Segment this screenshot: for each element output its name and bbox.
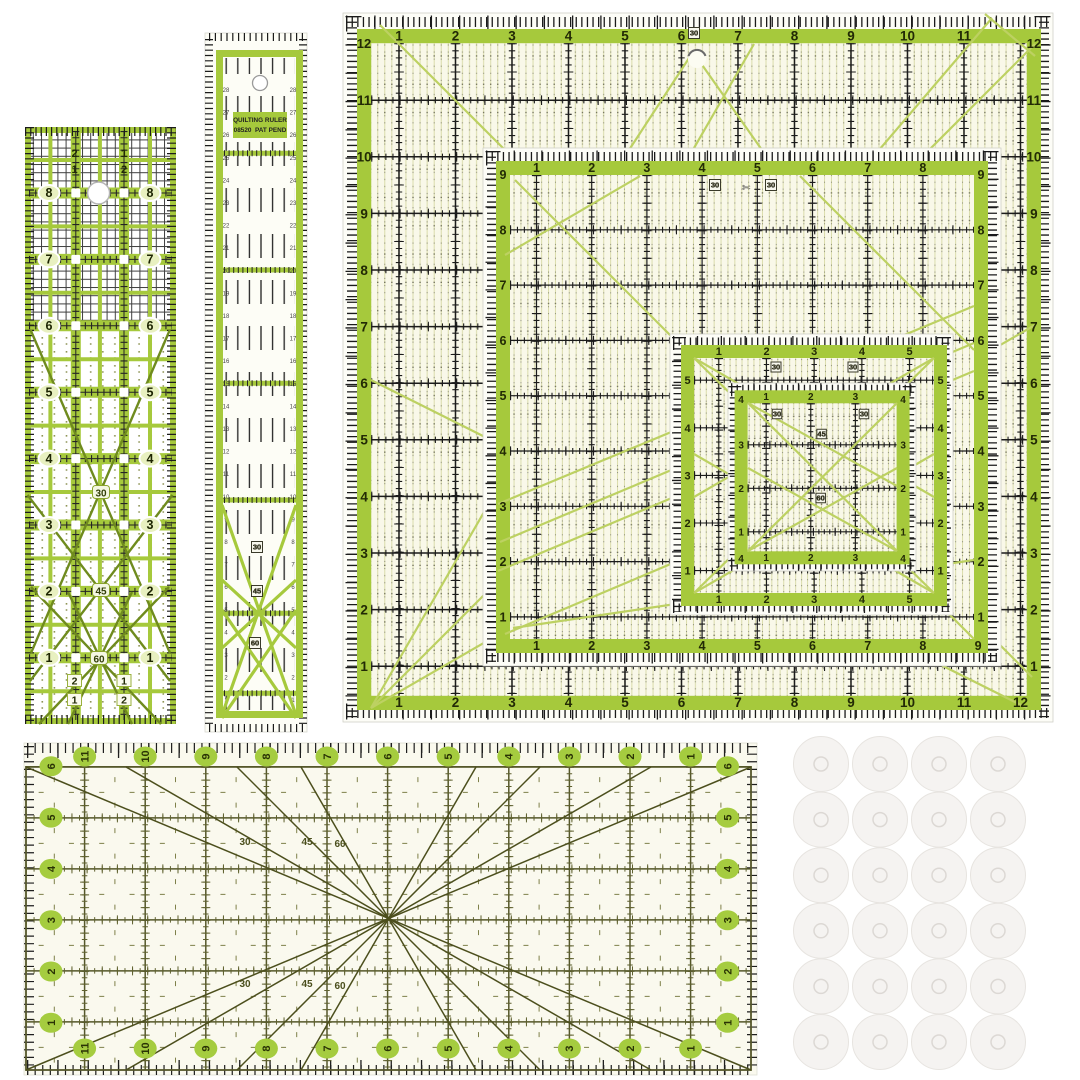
svg-text:1: 1 bbox=[685, 753, 697, 759]
svg-text:2: 2 bbox=[500, 555, 507, 569]
svg-text:7: 7 bbox=[1030, 319, 1038, 334]
svg-text:2: 2 bbox=[763, 594, 769, 606]
svg-text:18: 18 bbox=[290, 314, 297, 320]
svg-text:8: 8 bbox=[360, 263, 368, 278]
svg-text:1: 1 bbox=[147, 651, 154, 665]
svg-text:14: 14 bbox=[290, 404, 297, 410]
svg-text:5: 5 bbox=[360, 433, 368, 448]
svg-text:4: 4 bbox=[500, 445, 507, 459]
svg-text:45: 45 bbox=[95, 587, 107, 598]
svg-text:2: 2 bbox=[46, 585, 53, 599]
svg-text:5: 5 bbox=[937, 375, 943, 387]
svg-text:5: 5 bbox=[147, 385, 154, 399]
svg-text:23: 23 bbox=[223, 201, 230, 207]
svg-text:12: 12 bbox=[1013, 695, 1028, 710]
svg-text:2: 2 bbox=[937, 518, 943, 530]
svg-text:12: 12 bbox=[1027, 36, 1041, 51]
svg-text:1: 1 bbox=[533, 639, 540, 653]
svg-text:4: 4 bbox=[859, 594, 866, 606]
svg-text:11: 11 bbox=[79, 751, 91, 763]
svg-text:4: 4 bbox=[859, 346, 866, 358]
svg-text:3: 3 bbox=[508, 695, 516, 710]
svg-text:27: 27 bbox=[223, 111, 230, 117]
svg-text:28: 28 bbox=[290, 88, 297, 94]
svg-text:2: 2 bbox=[625, 753, 637, 759]
svg-text:8: 8 bbox=[791, 695, 799, 710]
svg-text:5: 5 bbox=[754, 161, 761, 175]
svg-text:1: 1 bbox=[763, 553, 769, 564]
svg-text:8: 8 bbox=[500, 223, 507, 237]
svg-text:8: 8 bbox=[919, 639, 926, 653]
svg-text:3: 3 bbox=[46, 917, 58, 923]
svg-text:25: 25 bbox=[223, 156, 230, 162]
svg-text:8: 8 bbox=[791, 28, 799, 43]
svg-text:3: 3 bbox=[978, 500, 985, 514]
svg-text:7: 7 bbox=[322, 1045, 334, 1051]
svg-text:4: 4 bbox=[1030, 489, 1038, 504]
svg-text:30: 30 bbox=[95, 489, 107, 500]
svg-text:26: 26 bbox=[290, 133, 297, 139]
svg-text:4: 4 bbox=[565, 28, 573, 43]
svg-text:5: 5 bbox=[46, 385, 53, 399]
svg-text:1: 1 bbox=[900, 527, 906, 538]
svg-text:4: 4 bbox=[699, 161, 706, 175]
svg-text:4: 4 bbox=[504, 753, 516, 760]
svg-text:60: 60 bbox=[817, 494, 825, 503]
svg-text:30: 30 bbox=[690, 29, 698, 38]
svg-text:8: 8 bbox=[46, 186, 53, 200]
svg-text:20: 20 bbox=[290, 269, 297, 275]
svg-text:60: 60 bbox=[334, 981, 346, 992]
svg-text:4: 4 bbox=[565, 695, 573, 710]
svg-text:3: 3 bbox=[853, 553, 859, 564]
svg-text:2: 2 bbox=[46, 968, 58, 974]
svg-text:2: 2 bbox=[71, 148, 77, 160]
svg-text:5: 5 bbox=[978, 389, 985, 403]
svg-text:5: 5 bbox=[500, 389, 507, 403]
svg-text:30: 30 bbox=[772, 363, 780, 372]
svg-text:8: 8 bbox=[978, 223, 985, 237]
svg-text:3: 3 bbox=[564, 1045, 576, 1051]
svg-text:3: 3 bbox=[811, 594, 817, 606]
svg-text:4: 4 bbox=[46, 865, 58, 872]
svg-text:25: 25 bbox=[290, 156, 297, 162]
svg-text:5: 5 bbox=[907, 594, 913, 606]
svg-text:17: 17 bbox=[290, 337, 297, 343]
svg-text:2: 2 bbox=[121, 164, 127, 176]
svg-text:11: 11 bbox=[1027, 93, 1042, 108]
svg-text:9: 9 bbox=[500, 168, 507, 182]
svg-text:4: 4 bbox=[738, 554, 744, 565]
svg-text:6: 6 bbox=[678, 28, 686, 43]
svg-text:9: 9 bbox=[201, 1045, 213, 1051]
svg-text:21: 21 bbox=[223, 246, 230, 252]
svg-text:30: 30 bbox=[239, 837, 251, 848]
svg-text:22: 22 bbox=[290, 224, 297, 230]
svg-text:08520 PAT PEND: 08520 PAT PEND bbox=[234, 127, 287, 134]
svg-text:10: 10 bbox=[900, 695, 915, 710]
svg-text:4: 4 bbox=[147, 452, 154, 466]
svg-text:6: 6 bbox=[809, 161, 816, 175]
svg-text:2: 2 bbox=[588, 161, 595, 175]
svg-text:5: 5 bbox=[722, 815, 734, 821]
svg-text:6: 6 bbox=[978, 334, 985, 348]
svg-text:8: 8 bbox=[147, 186, 154, 200]
svg-text:3: 3 bbox=[360, 546, 368, 561]
svg-text:28: 28 bbox=[223, 88, 230, 94]
svg-text:8: 8 bbox=[261, 1045, 273, 1051]
svg-text:2: 2 bbox=[763, 346, 769, 358]
svg-text:3: 3 bbox=[147, 518, 154, 532]
svg-text:1: 1 bbox=[395, 28, 403, 43]
svg-text:12: 12 bbox=[357, 36, 371, 51]
svg-text:11: 11 bbox=[957, 695, 972, 710]
svg-text:4: 4 bbox=[722, 865, 734, 872]
svg-text:22: 22 bbox=[223, 224, 230, 230]
svg-text:1: 1 bbox=[937, 566, 943, 578]
svg-text:11: 11 bbox=[290, 472, 297, 478]
svg-text:13: 13 bbox=[223, 427, 230, 433]
svg-text:4: 4 bbox=[978, 445, 985, 459]
svg-text:20: 20 bbox=[223, 269, 230, 275]
svg-text:4: 4 bbox=[937, 423, 944, 435]
svg-text:2: 2 bbox=[978, 555, 985, 569]
svg-text:10: 10 bbox=[140, 1042, 152, 1054]
svg-text:10: 10 bbox=[290, 495, 297, 501]
svg-text:5: 5 bbox=[1030, 433, 1038, 448]
svg-text:3: 3 bbox=[1030, 546, 1038, 561]
svg-text:10: 10 bbox=[140, 750, 152, 762]
svg-text:6: 6 bbox=[147, 319, 154, 333]
svg-text:45: 45 bbox=[301, 979, 313, 990]
svg-text:12: 12 bbox=[223, 450, 230, 456]
svg-text:6: 6 bbox=[1030, 376, 1038, 391]
svg-text:9: 9 bbox=[360, 206, 368, 221]
svg-text:60: 60 bbox=[334, 839, 346, 850]
svg-text:4: 4 bbox=[900, 395, 906, 406]
svg-text:11: 11 bbox=[79, 1043, 91, 1055]
svg-text:2: 2 bbox=[625, 1045, 637, 1051]
svg-text:6: 6 bbox=[809, 639, 816, 653]
svg-text:2: 2 bbox=[1030, 602, 1038, 617]
svg-text:24: 24 bbox=[290, 178, 297, 184]
svg-text:6: 6 bbox=[382, 1045, 394, 1051]
svg-text:24: 24 bbox=[223, 178, 230, 184]
svg-text:1: 1 bbox=[121, 676, 127, 688]
svg-text:19: 19 bbox=[290, 291, 297, 297]
svg-text:45: 45 bbox=[253, 587, 261, 596]
svg-text:1: 1 bbox=[71, 164, 77, 176]
svg-text:2: 2 bbox=[588, 639, 595, 653]
svg-text:2: 2 bbox=[121, 695, 127, 707]
svg-text:11: 11 bbox=[957, 28, 972, 43]
svg-text:6: 6 bbox=[500, 334, 507, 348]
svg-text:10: 10 bbox=[223, 495, 230, 501]
svg-text:23: 23 bbox=[290, 201, 297, 207]
svg-text:9: 9 bbox=[847, 695, 855, 710]
svg-text:5: 5 bbox=[754, 639, 761, 653]
svg-text:8: 8 bbox=[261, 753, 273, 759]
svg-text:1: 1 bbox=[395, 695, 403, 710]
svg-text:5: 5 bbox=[443, 753, 455, 759]
svg-text:9: 9 bbox=[847, 28, 855, 43]
svg-text:3: 3 bbox=[811, 346, 817, 358]
svg-text:5: 5 bbox=[621, 28, 629, 43]
svg-text:1: 1 bbox=[763, 392, 769, 403]
svg-text:2: 2 bbox=[684, 518, 690, 530]
svg-text:5: 5 bbox=[907, 346, 913, 358]
svg-text:3: 3 bbox=[853, 392, 859, 403]
svg-text:7: 7 bbox=[734, 695, 742, 710]
svg-text:2: 2 bbox=[900, 484, 906, 495]
svg-text:3: 3 bbox=[684, 470, 690, 482]
svg-text:6: 6 bbox=[382, 753, 394, 759]
svg-text:7: 7 bbox=[864, 161, 871, 175]
svg-text:1: 1 bbox=[685, 1045, 697, 1051]
svg-text:6: 6 bbox=[678, 695, 686, 710]
svg-text:16: 16 bbox=[290, 359, 297, 365]
svg-text:6: 6 bbox=[360, 376, 368, 391]
svg-text:30: 30 bbox=[711, 181, 719, 190]
svg-text:30: 30 bbox=[860, 410, 868, 419]
svg-text:3: 3 bbox=[508, 28, 516, 43]
svg-text:6: 6 bbox=[722, 763, 734, 769]
svg-text:4: 4 bbox=[504, 1045, 516, 1052]
svg-text:30: 30 bbox=[767, 181, 775, 190]
svg-text:7: 7 bbox=[360, 319, 368, 334]
svg-text:9: 9 bbox=[1030, 206, 1038, 221]
svg-text:1: 1 bbox=[722, 1020, 734, 1026]
svg-text:1: 1 bbox=[500, 610, 507, 624]
svg-text:9: 9 bbox=[978, 168, 985, 182]
svg-text:4: 4 bbox=[900, 554, 906, 565]
svg-text:18: 18 bbox=[223, 314, 230, 320]
svg-text:10: 10 bbox=[900, 28, 915, 43]
svg-text:30: 30 bbox=[239, 979, 251, 990]
svg-text:60: 60 bbox=[93, 655, 105, 666]
svg-text:2: 2 bbox=[738, 484, 744, 495]
svg-text:7: 7 bbox=[734, 28, 742, 43]
svg-text:10: 10 bbox=[357, 150, 372, 165]
svg-text:60: 60 bbox=[251, 639, 259, 648]
svg-text:30: 30 bbox=[253, 543, 261, 552]
svg-text:8: 8 bbox=[1030, 263, 1038, 278]
svg-text:7: 7 bbox=[46, 253, 53, 267]
svg-text:1: 1 bbox=[716, 346, 722, 358]
svg-text:19: 19 bbox=[223, 291, 230, 297]
svg-text:11: 11 bbox=[357, 93, 372, 108]
svg-text:✄: ✄ bbox=[742, 183, 751, 194]
svg-text:1: 1 bbox=[72, 695, 78, 707]
svg-text:1: 1 bbox=[360, 659, 368, 674]
svg-text:15: 15 bbox=[290, 382, 297, 388]
svg-text:4: 4 bbox=[46, 452, 53, 466]
svg-text:4: 4 bbox=[699, 639, 706, 653]
svg-text:1: 1 bbox=[738, 527, 744, 538]
svg-text:5: 5 bbox=[46, 815, 58, 821]
svg-text:3: 3 bbox=[722, 917, 734, 923]
svg-text:27: 27 bbox=[290, 111, 297, 117]
svg-text:3: 3 bbox=[937, 470, 943, 482]
svg-text:9: 9 bbox=[201, 753, 213, 759]
svg-text:3: 3 bbox=[643, 161, 650, 175]
svg-text:2: 2 bbox=[147, 585, 154, 599]
svg-text:1: 1 bbox=[684, 566, 690, 578]
svg-text:1: 1 bbox=[121, 148, 127, 160]
svg-text:30: 30 bbox=[773, 410, 781, 419]
svg-text:2: 2 bbox=[452, 28, 460, 43]
svg-text:9: 9 bbox=[975, 639, 982, 653]
svg-text:45: 45 bbox=[301, 837, 313, 848]
svg-text:26: 26 bbox=[223, 133, 230, 139]
svg-text:13: 13 bbox=[290, 427, 297, 433]
svg-text:21: 21 bbox=[290, 246, 297, 252]
svg-text:3: 3 bbox=[564, 753, 576, 759]
svg-text:5: 5 bbox=[443, 1045, 455, 1051]
svg-text:1: 1 bbox=[46, 651, 53, 665]
svg-text:7: 7 bbox=[147, 253, 154, 267]
svg-text:5: 5 bbox=[621, 695, 629, 710]
svg-text:8: 8 bbox=[919, 161, 926, 175]
svg-text:1: 1 bbox=[533, 161, 540, 175]
svg-text:11: 11 bbox=[223, 472, 230, 478]
svg-text:15: 15 bbox=[223, 382, 230, 388]
svg-text:4: 4 bbox=[360, 489, 368, 504]
svg-text:6: 6 bbox=[46, 763, 58, 769]
svg-text:3: 3 bbox=[500, 500, 507, 514]
svg-text:30: 30 bbox=[849, 363, 857, 372]
svg-text:17: 17 bbox=[223, 337, 230, 343]
svg-text:2: 2 bbox=[72, 676, 78, 688]
svg-text:1: 1 bbox=[46, 1020, 58, 1026]
svg-text:5: 5 bbox=[684, 375, 690, 387]
svg-text:14: 14 bbox=[223, 404, 230, 410]
svg-text:QUILTING RULER: QUILTING RULER bbox=[233, 117, 287, 124]
svg-text:6: 6 bbox=[46, 319, 53, 333]
svg-text:7: 7 bbox=[500, 279, 507, 293]
svg-text:3: 3 bbox=[738, 440, 744, 451]
svg-text:16: 16 bbox=[223, 359, 230, 365]
svg-text:7: 7 bbox=[322, 753, 334, 759]
svg-text:4: 4 bbox=[738, 395, 744, 406]
svg-text:3: 3 bbox=[900, 440, 906, 451]
svg-text:2: 2 bbox=[452, 695, 460, 710]
svg-text:7: 7 bbox=[864, 639, 871, 653]
svg-text:1: 1 bbox=[978, 610, 985, 624]
svg-text:4: 4 bbox=[684, 423, 691, 435]
svg-text:2: 2 bbox=[722, 968, 734, 974]
svg-text:7: 7 bbox=[978, 279, 985, 293]
svg-text:2: 2 bbox=[360, 602, 368, 617]
svg-text:1: 1 bbox=[1030, 659, 1038, 674]
svg-text:3: 3 bbox=[643, 639, 650, 653]
svg-text:3: 3 bbox=[46, 518, 53, 532]
svg-text:12: 12 bbox=[290, 450, 297, 456]
svg-text:2: 2 bbox=[808, 392, 814, 403]
svg-text:2: 2 bbox=[808, 553, 814, 564]
svg-text:10: 10 bbox=[1026, 150, 1041, 165]
svg-text:1: 1 bbox=[716, 594, 722, 606]
svg-text:45: 45 bbox=[817, 430, 825, 439]
